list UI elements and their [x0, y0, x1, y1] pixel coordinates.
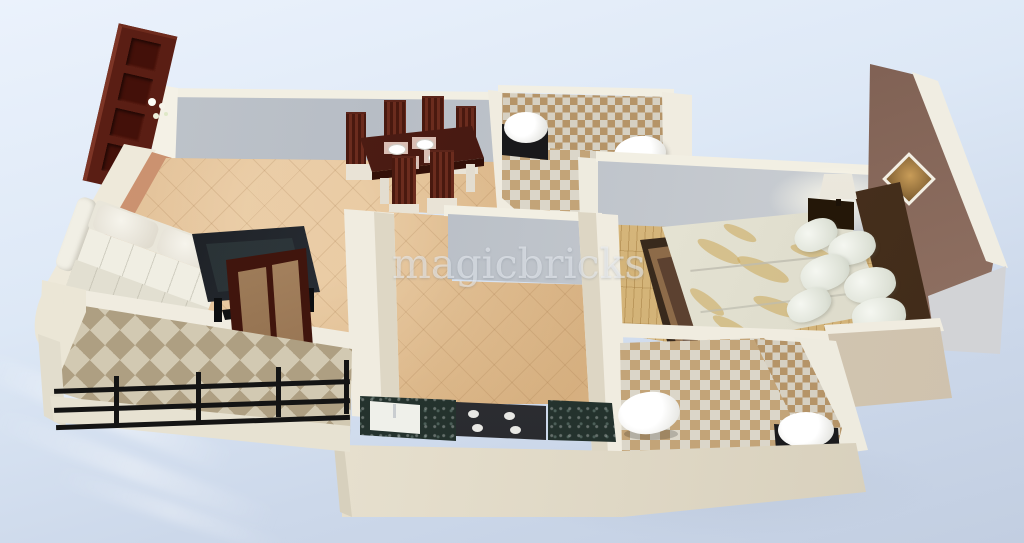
kitchen-faucet: [393, 404, 396, 418]
balcony-railing-post: [196, 372, 201, 422]
door-panel: [109, 108, 145, 142]
balcony-railing-post: [276, 367, 281, 417]
stove-burner: [472, 424, 483, 432]
bathroom-top-sink: [504, 112, 548, 143]
plate: [416, 139, 434, 150]
stove-burner: [468, 410, 479, 418]
floor-plan-render: magicbricks: [0, 0, 1024, 543]
door-panel: [126, 38, 162, 72]
plate: [388, 144, 406, 155]
dining-table-leg: [466, 164, 475, 192]
stove-burner: [504, 412, 515, 420]
bathroom-bottom-sink: [778, 412, 834, 448]
door-flowers: [148, 98, 156, 106]
watermark: magicbricks: [392, 238, 652, 290]
dining-chair-seat: [346, 164, 372, 180]
coffee-table-leg: [214, 298, 222, 322]
dining-table-leg: [380, 178, 389, 204]
balcony-railing-post: [114, 376, 119, 426]
stove-burner: [510, 426, 521, 434]
balcony-railing-post: [344, 360, 349, 414]
